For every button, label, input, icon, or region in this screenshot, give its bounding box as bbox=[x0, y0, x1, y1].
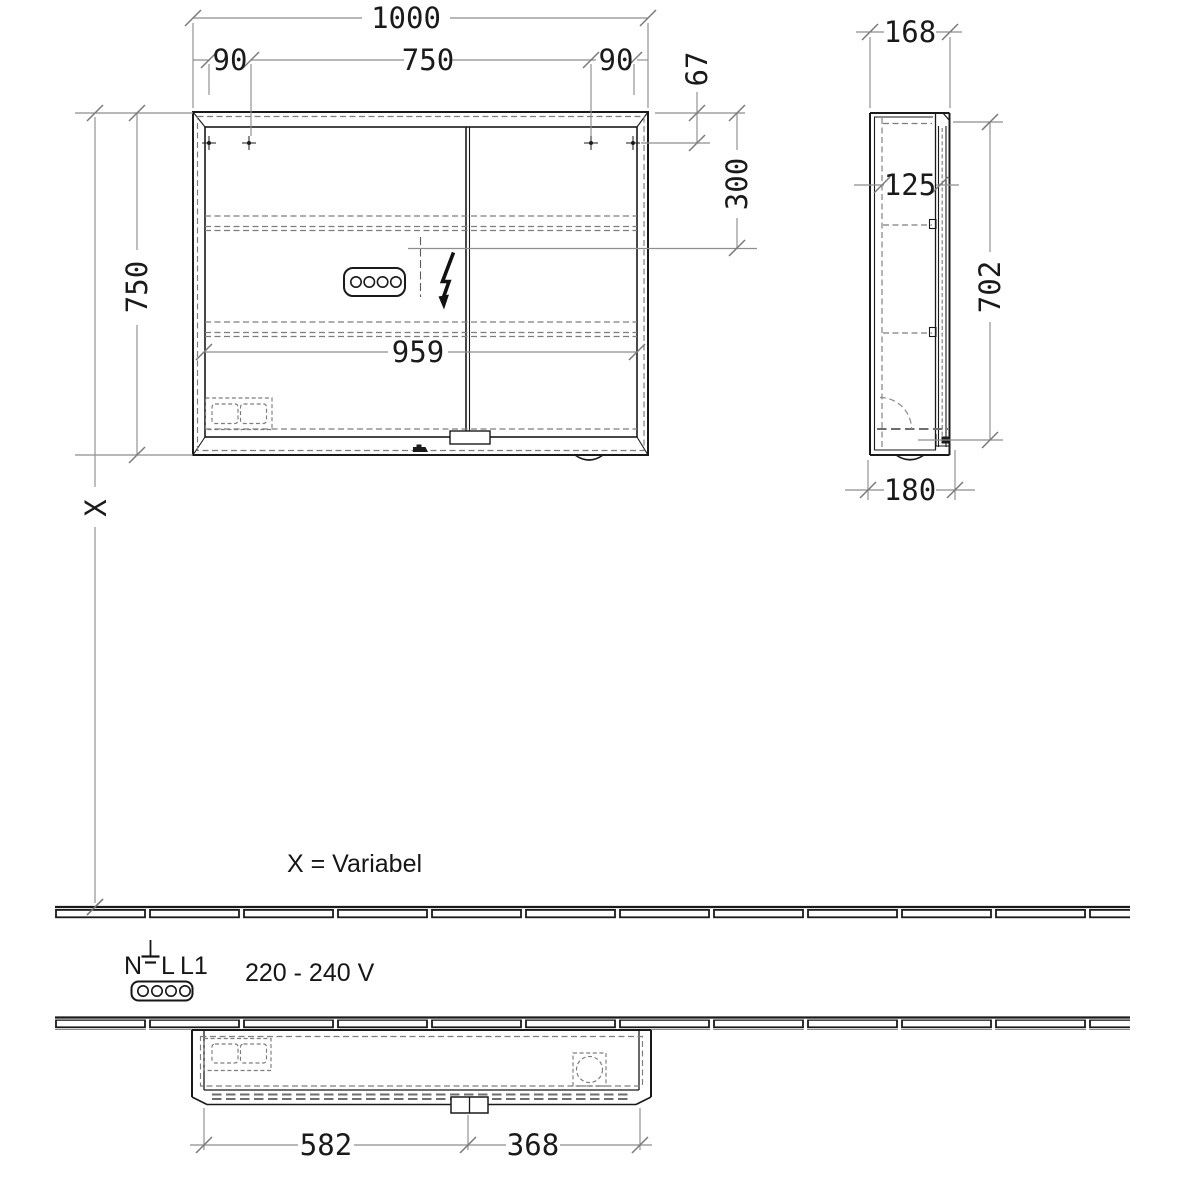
dim-hole-gap-left: 90 bbox=[213, 43, 248, 77]
dim-connection-height: 300 bbox=[720, 158, 754, 210]
dim-hole-gap-right: 90 bbox=[599, 43, 634, 77]
dim-total-depth: 180 bbox=[884, 473, 936, 507]
dim-inner-width: 959 bbox=[392, 335, 444, 369]
handle-detail-plan bbox=[451, 1097, 488, 1113]
terminal-l1-label: L1 bbox=[180, 952, 208, 980]
socket-icon bbox=[344, 268, 405, 296]
partition-foot-detail bbox=[450, 431, 490, 444]
dim-depth: 168 bbox=[884, 15, 936, 49]
dim-total-width: 1000 bbox=[371, 1, 441, 35]
dim-hole-span: 750 bbox=[402, 43, 454, 77]
technical-drawing-page: 1000 90 750 90 750 X 67 300 959 bbox=[0, 0, 1200, 1200]
note-x-variable: X = Variabel bbox=[287, 850, 422, 878]
dim-left-door-width: 582 bbox=[300, 1128, 352, 1162]
dim-hole-top-offset: 67 bbox=[680, 52, 714, 87]
terminal-l-label: L bbox=[161, 952, 175, 980]
dim-height: 750 bbox=[120, 261, 154, 313]
dim-inner-depth: 125 bbox=[884, 168, 936, 202]
terminal-n-label: N bbox=[124, 952, 142, 980]
mirror-cabinet-dimension-drawing: 1000 90 750 90 750 X 67 300 959 bbox=[0, 0, 1200, 1200]
plug-connector-icon bbox=[132, 982, 193, 1001]
dim-door-height: 702 bbox=[973, 261, 1007, 313]
dim-right-door-width: 368 bbox=[507, 1128, 559, 1162]
voltage-label: 220 - 240 V bbox=[245, 959, 375, 987]
dim-x-variable: X bbox=[79, 499, 113, 517]
